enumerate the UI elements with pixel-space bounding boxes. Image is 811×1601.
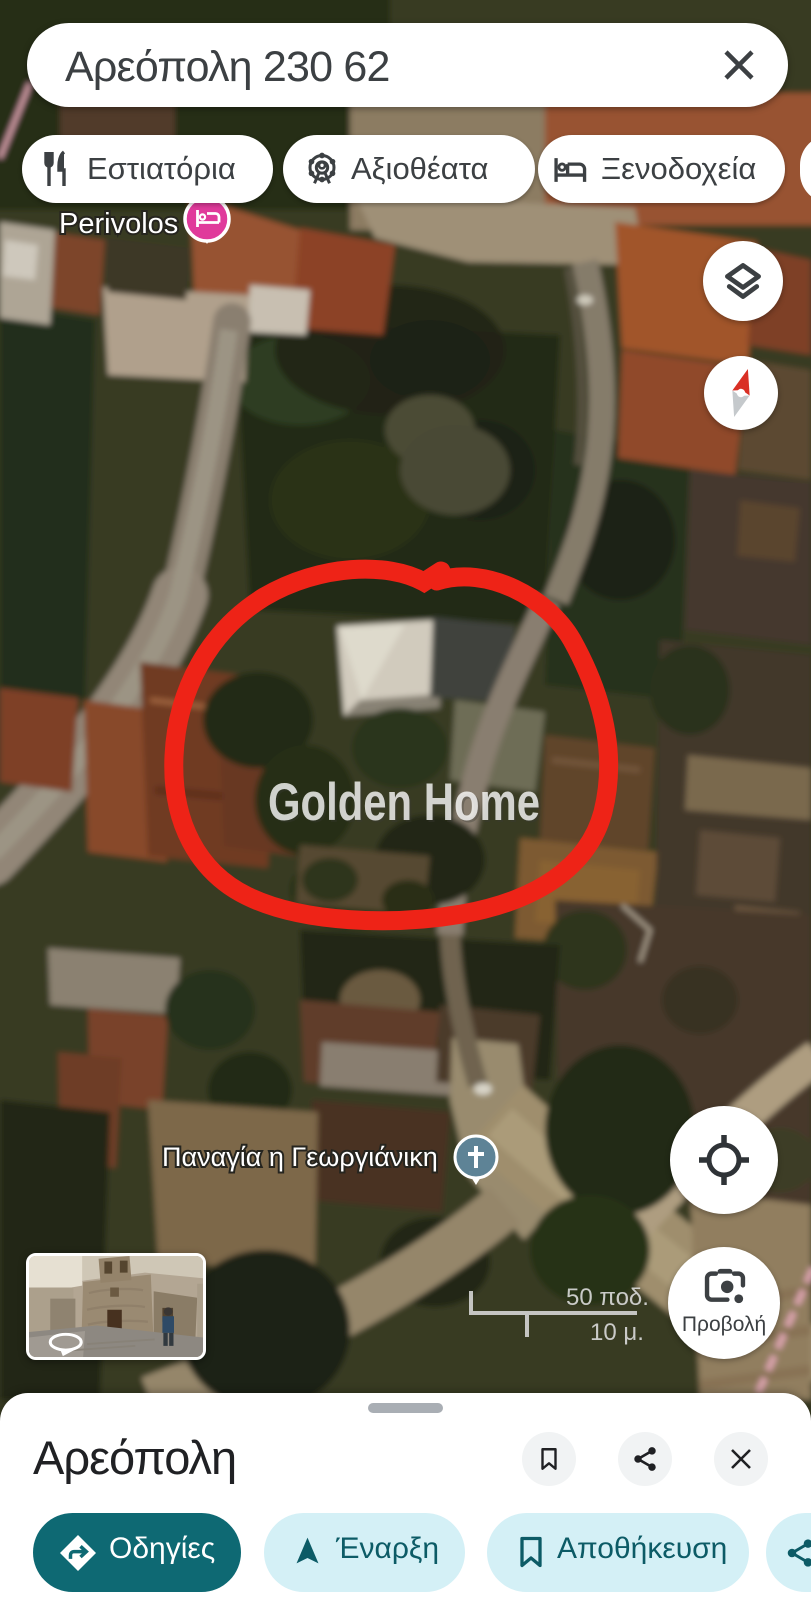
- svg-text:50 ποδ.: 50 ποδ.: [566, 1284, 649, 1311]
- svg-text:10 μ.: 10 μ.: [590, 1319, 644, 1346]
- svg-text:Perivolos: Perivolos: [59, 208, 178, 240]
- svg-text:Golden Home: Golden Home: [268, 773, 540, 832]
- svg-text:Παναγία η Γεωργιάνικη: Παναγία η Γεωργιάνικη: [162, 1142, 438, 1172]
